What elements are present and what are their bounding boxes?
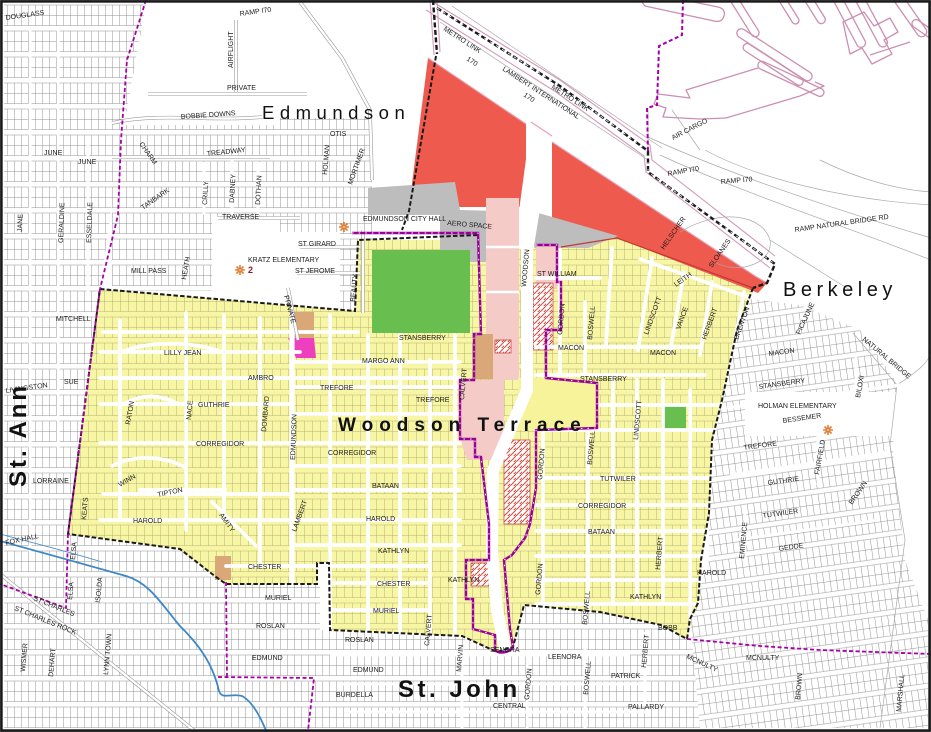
- svg-text:OTIS: OTIS: [330, 131, 347, 138]
- svg-text:BURDELLA: BURDELLA: [336, 692, 373, 699]
- svg-text:EDMUND: EDMUND: [353, 667, 384, 674]
- svg-text:LORRAINE: LORRAINE: [33, 478, 69, 485]
- svg-text:St. John: St. John: [398, 676, 521, 703]
- svg-text:JANE: JANE: [17, 214, 25, 232]
- svg-text:ROSLAN: ROSLAN: [256, 623, 285, 630]
- svg-text:ST JEROME: ST JEROME: [295, 268, 335, 275]
- svg-text:MURIEL: MURIEL: [373, 608, 400, 615]
- svg-text:JUNE: JUNE: [44, 150, 63, 157]
- svg-text:KATHLYN: KATHLYN: [448, 577, 479, 584]
- svg-text:JUNE: JUNE: [78, 159, 97, 166]
- svg-text:HAROLD: HAROLD: [697, 570, 726, 577]
- svg-text:Edmundson: Edmundson: [262, 102, 410, 123]
- svg-text:KATHLYN: KATHLYN: [378, 548, 409, 555]
- svg-text:CHESTER: CHESTER: [377, 581, 410, 588]
- svg-text:HAROLD: HAROLD: [366, 516, 395, 523]
- svg-text:MCNULTY: MCNULTY: [746, 655, 780, 662]
- svg-text:Woodson Terrace: Woodson Terrace: [338, 415, 587, 436]
- svg-text:STANSBERRY: STANSBERRY: [580, 376, 627, 383]
- svg-text:HOLMAN ELEMENTARY: HOLMAN ELEMENTARY: [758, 403, 837, 410]
- svg-text:KRATZ ELEMENTARY: KRATZ ELEMENTARY: [248, 257, 320, 264]
- svg-text:CRILLY: CRILLY: [202, 180, 210, 205]
- svg-text:AMBRO: AMBRO: [248, 375, 274, 382]
- svg-text:ESSELDALE: ESSELDALE: [86, 202, 94, 243]
- svg-text:MACON: MACON: [650, 350, 676, 357]
- svg-text:PRIVATE: PRIVATE: [227, 85, 256, 92]
- svg-text:ST WILLIAM: ST WILLIAM: [537, 271, 577, 278]
- svg-text:SUE: SUE: [64, 379, 79, 386]
- svg-text:CENTRAL: CENTRAL: [493, 703, 526, 710]
- svg-text:TRAVERSE: TRAVERSE: [222, 214, 260, 221]
- svg-text:TUTWILER: TUTWILER: [600, 476, 636, 483]
- svg-text:MITCHELL: MITCHELL: [56, 316, 91, 323]
- svg-text:St. Ann: St. Ann: [5, 383, 32, 487]
- svg-text:CORREGIDOR: CORREGIDOR: [328, 450, 376, 457]
- svg-text:PALLARDY: PALLARDY: [628, 704, 664, 711]
- svg-text:KATHLYN: KATHLYN: [630, 594, 661, 601]
- svg-text:BATAAN: BATAAN: [588, 529, 615, 536]
- svg-text:BOBB: BOBB: [658, 625, 678, 632]
- svg-text:TREFORE: TREFORE: [320, 385, 354, 392]
- svg-text:TREFORE: TREFORE: [416, 397, 450, 404]
- svg-text:HAROLD: HAROLD: [133, 518, 162, 525]
- svg-text:MILL PASS: MILL PASS: [131, 268, 167, 275]
- svg-text:ROSLAN: ROSLAN: [345, 637, 374, 644]
- svg-text:GUTHRIE: GUTHRIE: [198, 402, 230, 409]
- svg-text:AIRFLIGHT: AIRFLIGHT: [228, 31, 235, 68]
- svg-text:MARGO ANN: MARGO ANN: [362, 358, 405, 365]
- svg-text:Berkeley: Berkeley: [783, 279, 897, 301]
- svg-text:GERALDINE: GERALDINE: [58, 202, 66, 243]
- svg-text:LILLY JEAN: LILLY JEAN: [164, 350, 202, 357]
- svg-text:CORREGIDOR: CORREGIDOR: [578, 503, 626, 510]
- svg-text:PATRICK: PATRICK: [611, 673, 641, 680]
- svg-text:CHESTER: CHESTER: [248, 564, 281, 571]
- svg-text:BATAAN: BATAAN: [372, 483, 399, 490]
- svg-text:2: 2: [248, 265, 253, 275]
- svg-text:MACON: MACON: [558, 345, 584, 352]
- svg-text:ST GIRARD: ST GIRARD: [298, 241, 336, 248]
- svg-text:LEENORA: LEENORA: [548, 654, 582, 661]
- svg-text:MURIEL: MURIEL: [265, 595, 292, 602]
- svg-text:CORREGIDOR: CORREGIDOR: [196, 441, 244, 448]
- svg-text:EDMUND: EDMUND: [252, 655, 283, 662]
- svg-text:STANSBERRY: STANSBERRY: [399, 335, 446, 342]
- svg-text:SENORA: SENORA: [490, 647, 520, 654]
- svg-text:EDMUNDSON CITY HALL: EDMUNDSON CITY HALL: [363, 216, 446, 223]
